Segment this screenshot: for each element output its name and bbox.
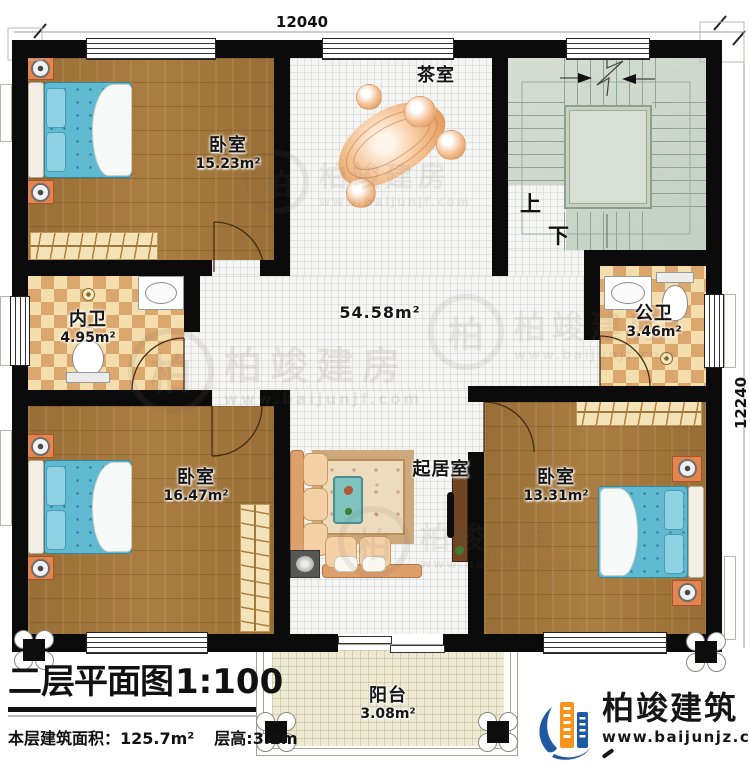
nightstand <box>26 56 54 80</box>
room-name: 阳台 <box>369 686 407 706</box>
wall-segment <box>12 390 212 406</box>
corner-table <box>290 550 320 578</box>
room-name: 茶室 <box>417 66 455 86</box>
stair-down-label: 下 <box>548 220 569 250</box>
room-area: 3.46m² <box>626 325 681 340</box>
flower-decor-icon <box>345 508 352 515</box>
bed-pillow <box>46 132 66 172</box>
room-area: 16.47m² <box>163 489 228 504</box>
bed-headboard <box>28 82 44 178</box>
window-sill <box>724 294 736 368</box>
room-label-public-bath: 公卫 3.46m² <box>614 304 694 340</box>
stair-treads-left <box>508 102 564 186</box>
room-name: 卧室 <box>209 136 247 156</box>
window <box>322 38 454 60</box>
sink-basin-icon <box>145 282 177 304</box>
stair-treads-upper <box>564 58 656 108</box>
floor-door-gap <box>212 390 260 406</box>
tv-icon <box>447 492 454 538</box>
bed-blanket <box>92 462 132 552</box>
dimension-right: 12240 <box>732 373 750 433</box>
wall-segment <box>12 260 212 276</box>
sofa-throw-pillow <box>334 556 358 572</box>
room-label-bedroom-bottom-right: 卧室 13.31m² <box>512 468 600 504</box>
sofa-cushion <box>303 453 328 486</box>
toilet-tank <box>656 272 694 283</box>
lamp-icon <box>31 559 50 578</box>
room-label-bedroom-bottom-left: 卧室 16.47m² <box>152 468 240 504</box>
sofa-cushion <box>303 488 328 521</box>
bed-pillow <box>664 534 684 574</box>
column <box>686 632 726 672</box>
brand-logo: 柏竣建筑 www.baijunjz.com <box>534 692 750 764</box>
bed-headboard <box>688 486 704 578</box>
ceiling-lamp-icon <box>82 288 95 301</box>
lamp-icon <box>31 437 50 456</box>
room-label-tea-room: 茶室 <box>400 66 472 86</box>
brand-logo-icon <box>534 695 594 761</box>
lamp-icon <box>678 459 697 478</box>
wardrobe <box>240 504 270 632</box>
wardrobe <box>30 232 158 260</box>
floor-door-gap <box>212 260 260 276</box>
brand-tick-icon <box>602 748 615 759</box>
room-label-living-room: 起居室 <box>396 460 486 480</box>
lamp-icon <box>678 583 697 602</box>
title-block: 二层平面图 1:100 本层建筑面积：125.7m² 层高:3.2m <box>8 654 308 764</box>
title-underline <box>8 707 256 712</box>
room-label-balcony: 阳台 3.08m² <box>346 686 430 722</box>
window <box>10 296 30 366</box>
plan-title: 二层平面图 1:100 <box>8 654 308 703</box>
sofa-throw-pillow <box>362 556 386 572</box>
window <box>543 632 667 654</box>
room-name: 起居室 <box>413 460 470 480</box>
room-name: 公卫 <box>635 304 673 324</box>
nightstand <box>26 556 54 580</box>
window <box>86 632 208 654</box>
floor-hall-sliver <box>508 250 584 276</box>
bed-pillow <box>46 88 66 128</box>
title-underline-thin <box>8 715 256 717</box>
room-label-hall: 54.58m² <box>332 304 428 322</box>
balcony-sliding-door <box>390 645 445 653</box>
lamp-icon <box>31 59 50 78</box>
floor-area-text: 本层建筑面积：125.7m² <box>8 725 194 749</box>
tea-room-rock-feature <box>328 92 468 212</box>
stair-landing <box>564 105 652 209</box>
floor-info: 本层建筑面积：125.7m² 层高:3.2m <box>8 725 308 749</box>
bed-pillow <box>46 510 66 550</box>
coffee-table <box>333 476 363 524</box>
lamp-icon <box>31 183 50 202</box>
nightstand <box>26 180 54 204</box>
window <box>86 38 216 60</box>
window-sill <box>0 430 12 526</box>
wall-segment <box>260 260 290 276</box>
room-label-bedroom-top-left: 卧室 15.23m² <box>184 136 272 172</box>
stair-treads-right <box>652 102 706 214</box>
sofa-back <box>290 450 304 558</box>
brand-website: www.baijunjz.com <box>602 728 750 764</box>
nightstand <box>672 580 702 606</box>
flower-decor-icon <box>344 486 353 495</box>
wall-segment <box>584 250 722 266</box>
dimension-top: 12040 <box>267 13 337 31</box>
toilet-base <box>66 372 110 383</box>
bed-headboard <box>28 460 44 554</box>
balcony-sliding-door <box>338 636 392 644</box>
plan-scale: 1:100 <box>175 662 283 702</box>
floor-height-text: 层高:3.2m <box>214 725 297 749</box>
ceiling-lamp-icon <box>660 352 673 365</box>
stair-up-label: 上 <box>520 188 541 218</box>
wall-segment <box>274 390 290 652</box>
wall-segment <box>468 452 484 652</box>
brand-name: 柏竣建筑 <box>602 692 750 724</box>
column <box>478 712 518 752</box>
floor-hall <box>184 276 600 390</box>
wall-segment <box>184 260 200 332</box>
room-area: 3.08m² <box>360 707 415 722</box>
wall-segment <box>584 250 600 340</box>
wall-segment <box>492 40 508 276</box>
wardrobe <box>576 398 702 426</box>
bed-pillow <box>664 490 684 530</box>
nightstand <box>26 434 54 458</box>
wall-segment <box>274 40 290 276</box>
window-sill <box>724 556 736 640</box>
room-name: 卧室 <box>177 468 215 488</box>
room-name: 内卫 <box>69 310 107 330</box>
nightstand <box>672 456 702 482</box>
bed-pillow <box>46 466 66 506</box>
window <box>704 294 724 368</box>
stair-treads-lower <box>564 212 652 250</box>
window-sill <box>0 84 12 142</box>
bed-blanket <box>600 488 638 576</box>
room-area: 13.31m² <box>523 489 588 504</box>
room-area: 54.58m² <box>339 304 420 322</box>
plan-title-text: 二层平面图 <box>8 654 173 703</box>
floor-plan-page: 12040 12240 卧室 15.23m² 茶室 上 下 内卫 4.95m² … <box>0 0 750 773</box>
bed-blanket <box>92 84 132 176</box>
room-label-inner-bath: 内卫 4.95m² <box>48 310 128 346</box>
window <box>566 38 650 60</box>
room-area: 4.95m² <box>60 331 115 346</box>
wall-segment <box>468 386 722 402</box>
room-name: 卧室 <box>537 468 575 488</box>
sink-basin-icon <box>611 282 645 304</box>
room-area: 15.23m² <box>195 157 260 172</box>
